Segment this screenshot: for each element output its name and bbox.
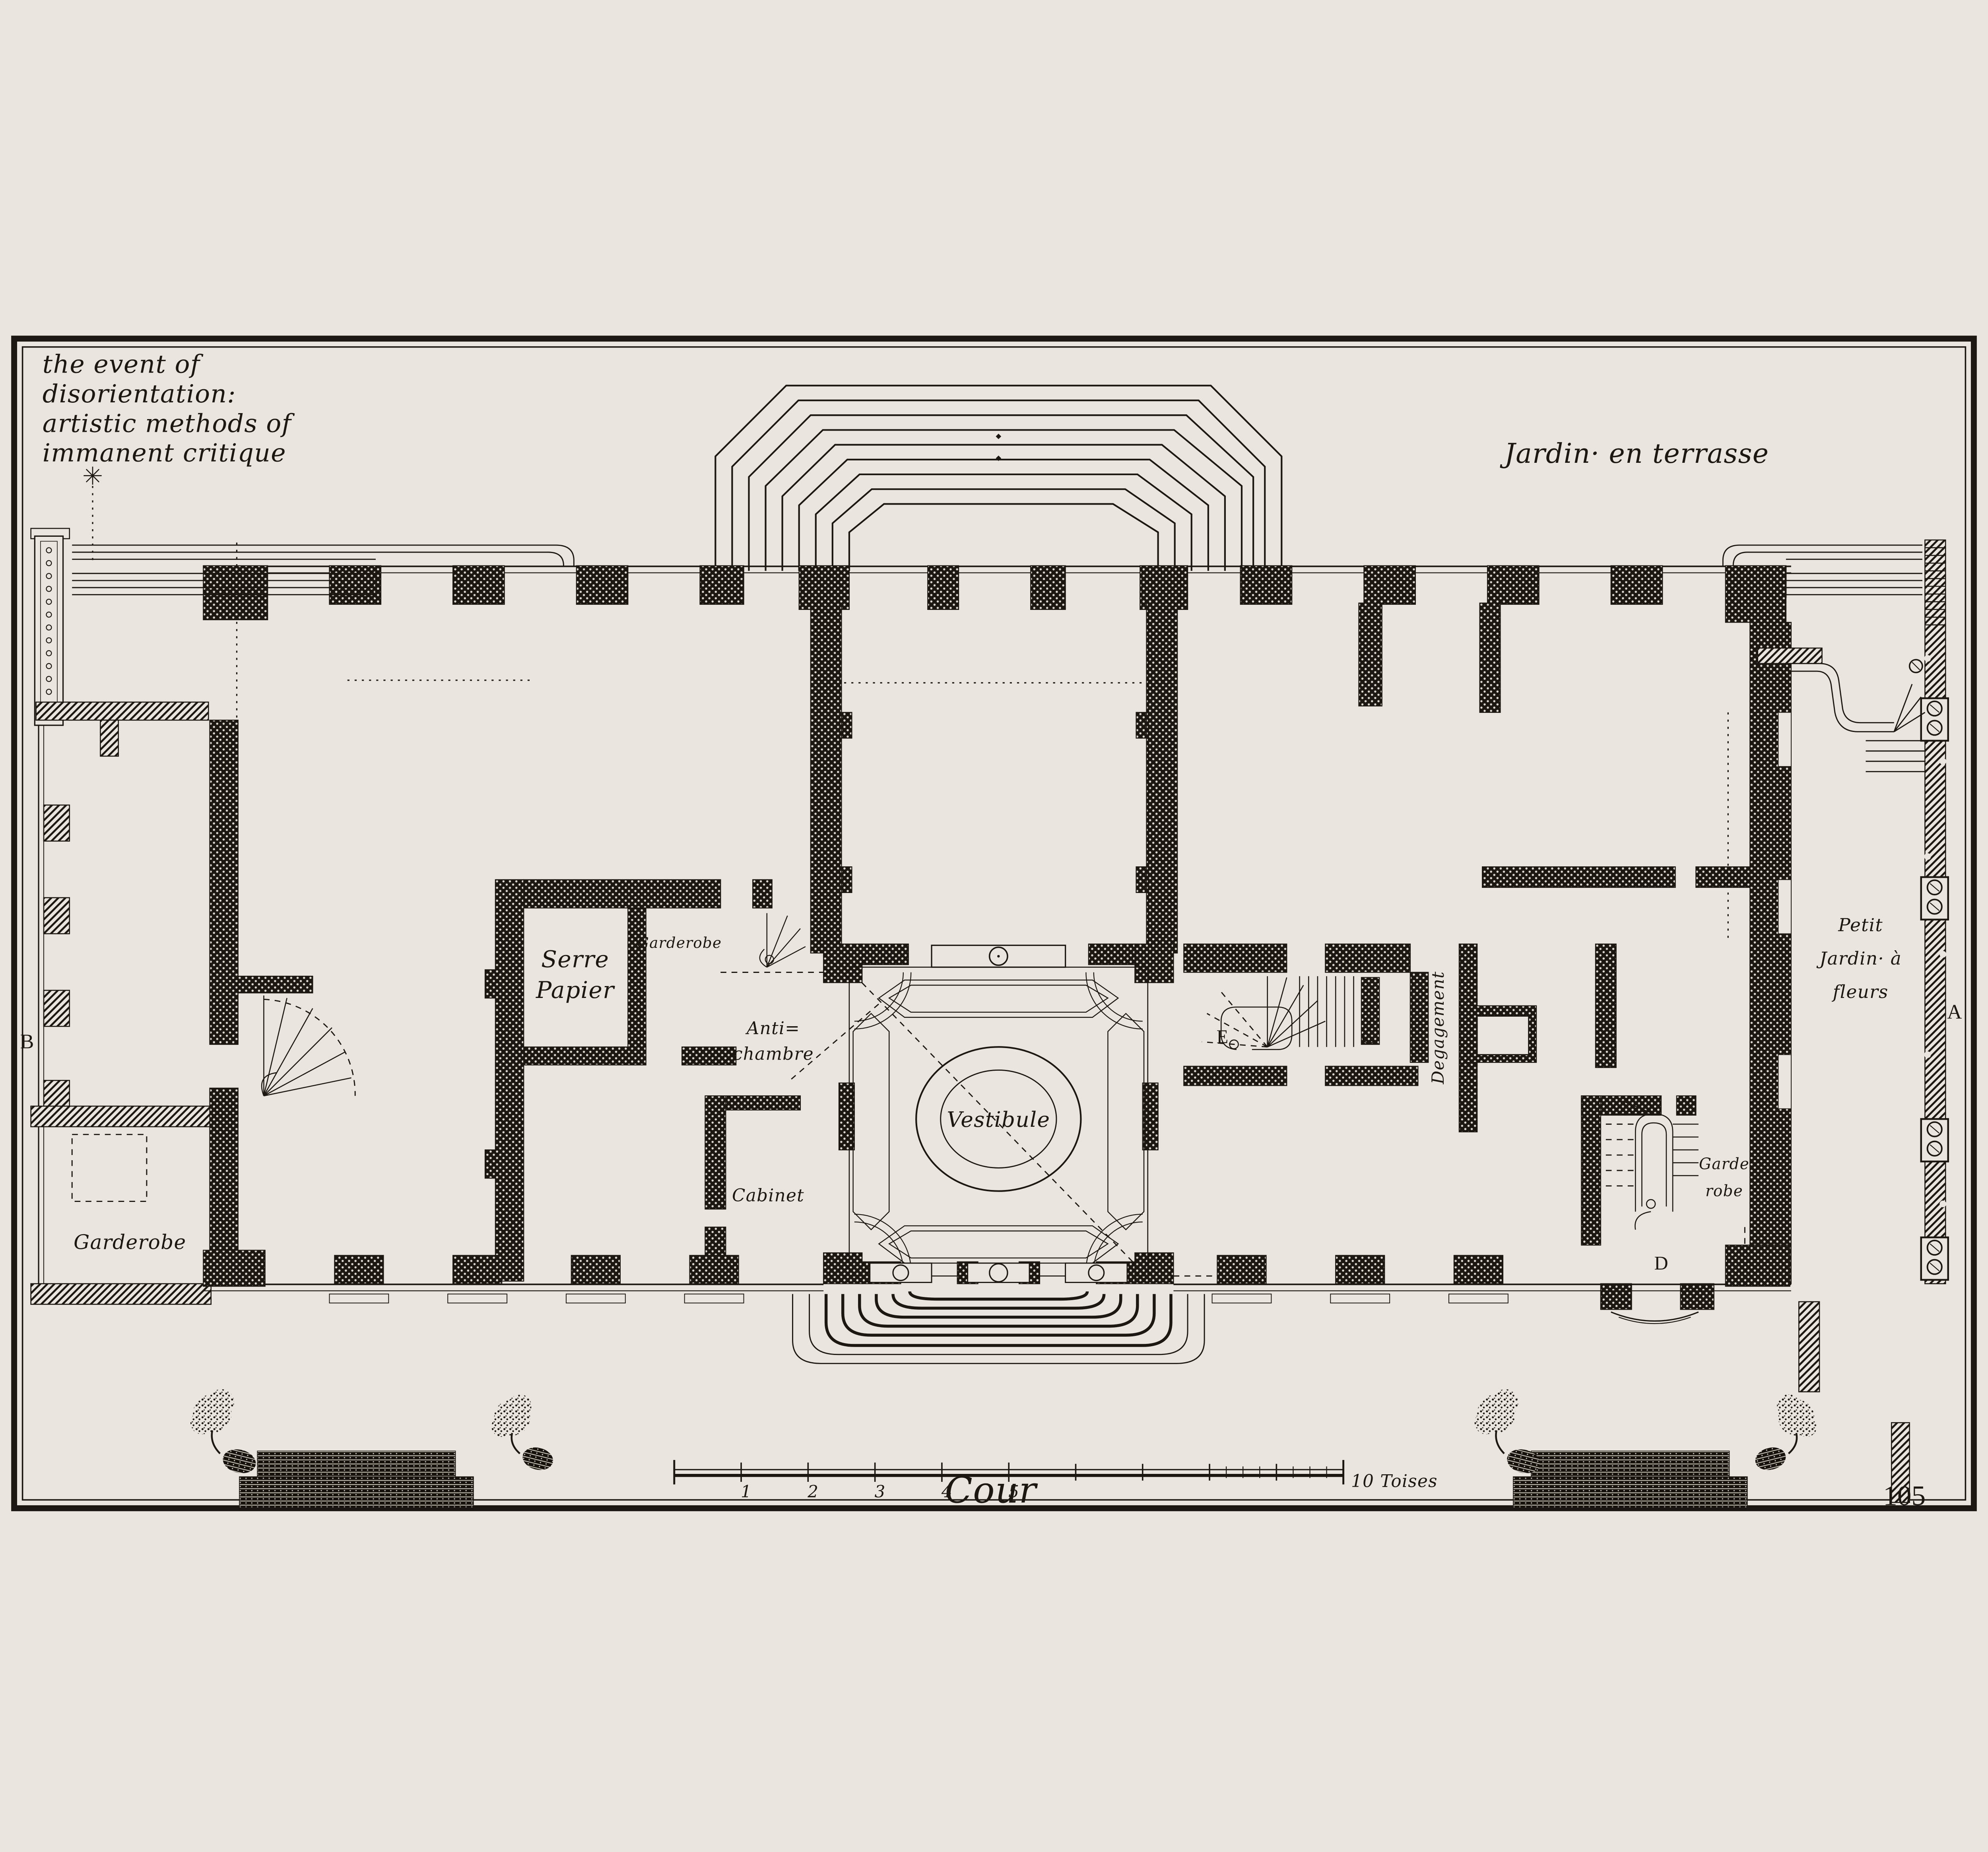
page-number: 105 bbox=[1883, 1480, 1926, 1511]
reference-star-icon bbox=[83, 467, 101, 485]
scale-tick-1: 1 bbox=[741, 1482, 752, 1501]
hedge-left-upper bbox=[257, 1451, 455, 1479]
scale-end-label: 10 Toises bbox=[1351, 1471, 1438, 1491]
title-line-1: the event of bbox=[43, 349, 204, 379]
antichambre-label-1: Anti= bbox=[745, 1018, 800, 1039]
serre-papier-label-1: Serre bbox=[541, 946, 609, 973]
title-line-2: disorientation: bbox=[43, 379, 236, 408]
hedge-right-upper bbox=[1531, 1451, 1729, 1479]
hedge-right-lower bbox=[1513, 1477, 1747, 1508]
cabinet-label: Cabinet bbox=[732, 1186, 804, 1206]
cour-label: Cour bbox=[945, 1470, 1038, 1511]
garden-label: Jardin· en terrasse bbox=[1500, 438, 1769, 470]
vestibule-label: Vestibule bbox=[947, 1107, 1050, 1132]
degagement-label: Degagement bbox=[1428, 971, 1448, 1085]
title-line-3: artistic methods of bbox=[43, 408, 295, 438]
key-C: C bbox=[1361, 1026, 1374, 1047]
key-A: A bbox=[1947, 1001, 1962, 1023]
serre-papier-label-2: Papier bbox=[536, 976, 615, 1004]
engraved-plate-page: 1 2 3 4 5 10 Toises the event of disorie… bbox=[0, 0, 1988, 1852]
antichambre-label-2: chambre bbox=[733, 1044, 814, 1064]
key-D: D bbox=[1654, 1253, 1668, 1274]
title-line-4: immanent critique bbox=[43, 438, 286, 468]
key-E: E bbox=[1217, 1026, 1229, 1047]
petit-jardin-label-3: fleurs bbox=[1832, 981, 1889, 1002]
scale-tick-3: 3 bbox=[875, 1482, 886, 1501]
hedge-left-lower bbox=[239, 1477, 474, 1508]
petit-jardin-label-1: Petit bbox=[1838, 914, 1883, 936]
garderobe-left-label: Garderobe bbox=[74, 1230, 186, 1254]
scale-tick-2: 2 bbox=[807, 1482, 819, 1501]
garderobe-small-label: Garderobe bbox=[637, 934, 722, 951]
petit-jardin-label-2: Jardin· à bbox=[1816, 948, 1902, 969]
garde-robe-label-1: Garde bbox=[1699, 1155, 1749, 1173]
key-B: B bbox=[20, 1030, 34, 1053]
garde-robe-label-2: robe bbox=[1705, 1182, 1743, 1200]
floor-plan-engraving: 1 2 3 4 5 10 Toises the event of disorie… bbox=[0, 0, 1988, 1852]
